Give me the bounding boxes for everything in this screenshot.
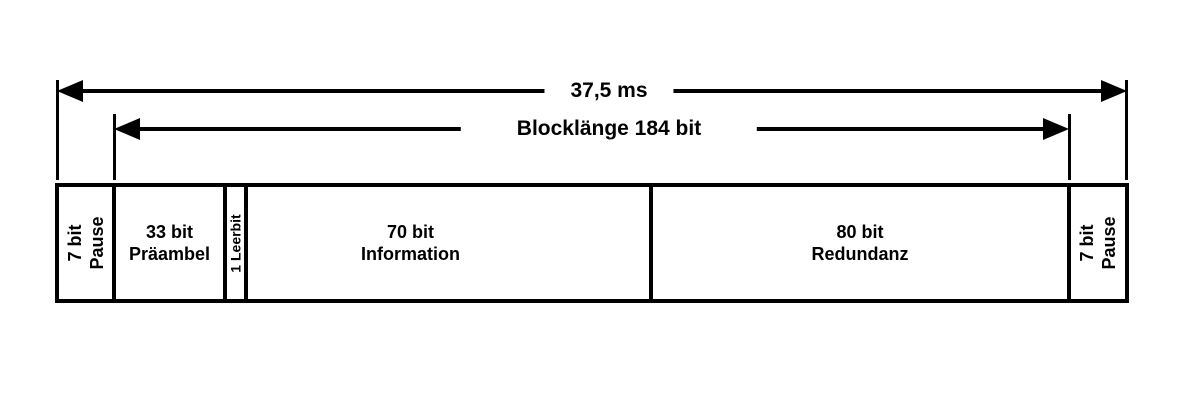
- segment-praeambel: 33 bit Präambel: [116, 187, 223, 299]
- segment-label-line: Redundanz: [812, 243, 909, 265]
- segment-label-line: Information: [361, 243, 460, 265]
- block-length-label: Blocklänge 184 bit: [461, 117, 757, 141]
- segment-label-line: 7 bit: [64, 187, 86, 299]
- arrowhead-left-icon: [57, 80, 83, 102]
- arrowhead-left-icon: [114, 118, 140, 140]
- block-length-arrow: Blocklänge 184 bit: [114, 118, 1069, 140]
- segment-redundanz: 80 bit Redundanz: [653, 187, 1067, 299]
- segment-label-line: 70 bit: [361, 221, 460, 243]
- arrowhead-right-icon: [1101, 80, 1127, 102]
- segment-pause-left-label: 7 bit Pause: [64, 187, 108, 299]
- segment-leerbit-label: 1 Leerbit: [227, 193, 244, 293]
- segment-pause-left: 7 bit Pause: [59, 187, 112, 299]
- segment-pause-right: 7 bit Pause: [1071, 187, 1125, 299]
- frame-structure-diagram: 37,5 ms Blocklänge 184 bit 7 bit Pause 3…: [0, 0, 1200, 400]
- segment-leerbit: 1 Leerbit: [227, 187, 244, 299]
- segment-label-line: Pause: [1098, 187, 1120, 299]
- arrowhead-right-icon: [1043, 118, 1069, 140]
- segment-label-line: 80 bit: [812, 221, 909, 243]
- segment-label-line: Präambel: [129, 243, 210, 265]
- total-duration-label: 37,5 ms: [544, 79, 673, 103]
- segment-label-line: 7 bit: [1076, 187, 1098, 299]
- total-duration-arrow: 37,5 ms: [57, 80, 1127, 102]
- segment-praeambel-label: 33 bit Präambel: [129, 221, 210, 265]
- segment-label-line: Pause: [86, 187, 108, 299]
- segment-redundanz-label: 80 bit Redundanz: [812, 221, 909, 265]
- segment-information: 70 bit Information: [248, 187, 649, 299]
- segment-pause-right-label: 7 bit Pause: [1076, 187, 1120, 299]
- frame-bar: 7 bit Pause 33 bit Präambel 1 Leerbit 70…: [55, 183, 1129, 303]
- segment-information-label: 70 bit Information: [361, 221, 460, 265]
- segment-label-line: 1 Leerbit: [227, 193, 244, 293]
- segment-label-line: 33 bit: [129, 221, 210, 243]
